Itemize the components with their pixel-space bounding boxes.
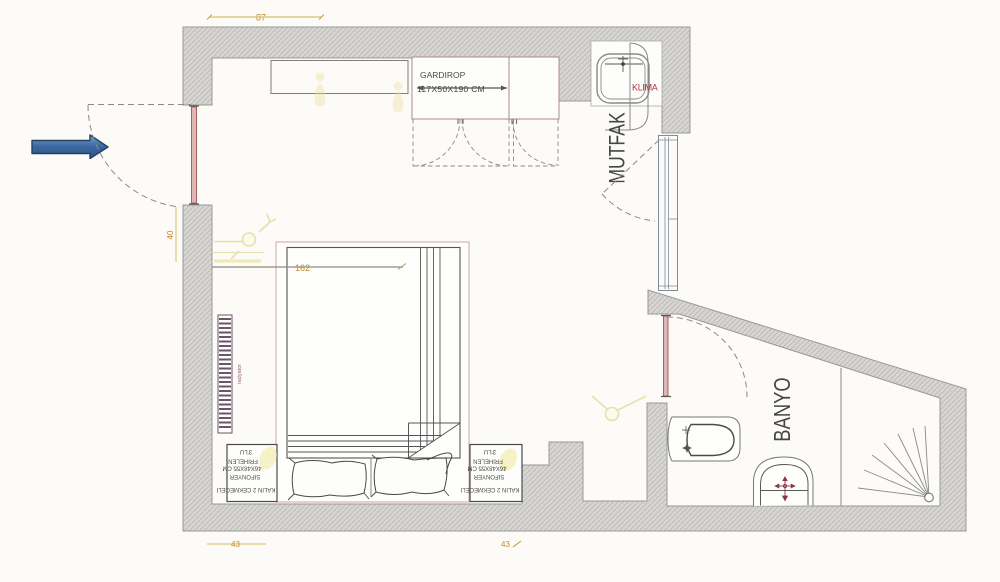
svg-text:162: 162 — [295, 263, 310, 273]
svg-text:GARDIROP: GARDIROP — [420, 70, 466, 80]
svg-text:117X50X190 CM: 117X50X190 CM — [417, 84, 485, 94]
svg-text:FRIHELEN: FRIHELEN — [228, 458, 258, 464]
svg-text:KLIMA: KLIMA — [632, 83, 658, 93]
svg-text:43: 43 — [231, 540, 240, 549]
svg-text:3'LU: 3'LU — [484, 448, 496, 454]
svg-text:FRIHELEN: FRIHELEN — [473, 458, 503, 464]
svg-text:43: 43 — [501, 540, 510, 549]
svg-text:46X48X55 CM: 46X48X55 CM — [222, 465, 261, 471]
svg-text:46X48X55 CM: 46X48X55 CM — [467, 465, 506, 471]
svg-text:MUTFAK: MUTFAK — [606, 112, 630, 184]
svg-text:KALIN 2 CEKMECELI: KALIN 2 CEKMECELI — [216, 486, 275, 492]
svg-text:radyator: radyator — [237, 364, 243, 384]
svg-text:SIFONYER: SIFONYER — [473, 473, 504, 479]
svg-text:BANYO: BANYO — [770, 377, 795, 441]
svg-text:SIFONYER: SIFONYER — [229, 473, 260, 479]
svg-text:3'LU: 3'LU — [240, 448, 252, 454]
svg-text:KALIN 2 CEKMECELI: KALIN 2 CEKMECELI — [460, 486, 519, 492]
svg-text:40: 40 — [166, 230, 175, 239]
